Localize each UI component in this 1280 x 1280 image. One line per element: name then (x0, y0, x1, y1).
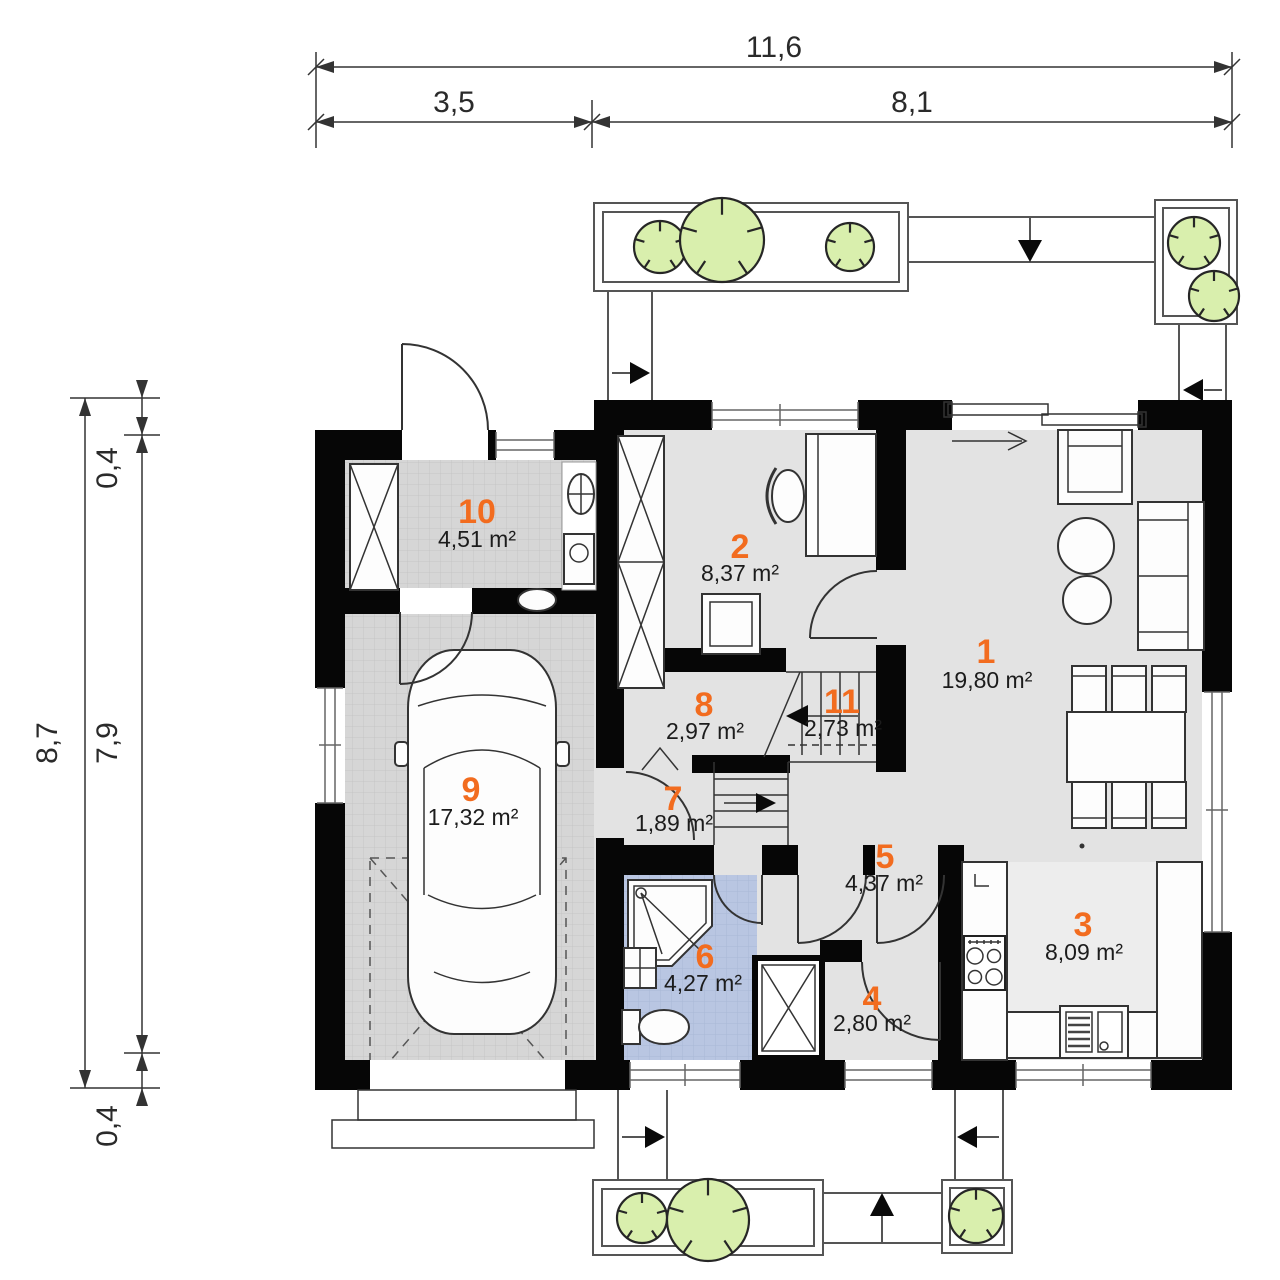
room-3-area: 8,09 m² (1045, 939, 1123, 965)
roof-slope-arrow-up (870, 1193, 894, 1216)
toilet (622, 1010, 689, 1044)
room-9-area: 17,32 m² (428, 804, 519, 830)
dim-house-width: 8,1 (891, 86, 933, 119)
utility-niche (562, 462, 596, 590)
closet-shaft (755, 958, 822, 1058)
dining-set (1067, 666, 1186, 828)
room-11-area: 2,73 m² (804, 715, 882, 741)
planter-top-left (594, 198, 908, 291)
floor-plan-page: 11,6 3,5 8,1 8,7 0,4 7,9 0,4 1 19,80 m² (0, 0, 1280, 1280)
bush (1168, 217, 1220, 269)
washbasin-bath (624, 948, 656, 988)
dim-wall-bottom: 0,4 (91, 1105, 124, 1147)
wardrobe-room2 (618, 436, 664, 688)
car-mirror-left (395, 742, 408, 766)
garage-sink (518, 589, 556, 611)
sofa (1138, 502, 1204, 650)
chair-room2 (702, 594, 760, 654)
room-1-number: 1 (977, 633, 996, 671)
coffee-table-small (1063, 576, 1111, 624)
driveway-apron (332, 1090, 594, 1148)
planter-top-right (1155, 200, 1239, 324)
window-garage (315, 688, 345, 803)
boiler (564, 534, 594, 584)
window-storage (845, 1060, 932, 1090)
kitchen-sink (1060, 1006, 1128, 1058)
floor-plan-drawing: 11,6 3,5 8,1 8,7 0,4 7,9 0,4 1 19,80 m² (0, 0, 1280, 1280)
office-chair (767, 468, 804, 524)
armchair (1058, 430, 1132, 504)
window-bathroom (630, 1060, 740, 1090)
dim-garage-width: 3,5 (433, 86, 475, 119)
bush (949, 1189, 1003, 1243)
window-kitchen (1016, 1060, 1151, 1090)
entry-door-opening (402, 430, 488, 460)
room-1-area: 19,80 m² (942, 667, 1033, 693)
planter-bottom-right (942, 1180, 1012, 1253)
hall-garage-door-opening (400, 588, 472, 614)
switch-dot (1080, 844, 1085, 849)
bush (826, 223, 874, 271)
bush (667, 1179, 749, 1261)
roof-slope-arrow-right-bottom (645, 1126, 665, 1148)
planter-bottom-left (593, 1179, 823, 1261)
room-4-area: 2,80 m² (833, 1010, 911, 1036)
dim-wall-top: 0,4 (91, 447, 124, 489)
roof-slope-arrow-left-bottom (957, 1126, 977, 1148)
stove (964, 936, 1005, 990)
room-7-area: 1,89 m² (635, 810, 713, 836)
window-dining (1202, 692, 1232, 932)
room-5-area: 4,37 m² (845, 870, 923, 896)
garage-door-opening (370, 1060, 565, 1090)
bush (1189, 271, 1239, 321)
room-10-area: 4,51 m² (438, 526, 516, 552)
bush (617, 1193, 667, 1243)
bush (634, 221, 686, 273)
window-room2 (712, 400, 858, 430)
bush (680, 198, 764, 282)
dim-inner-height: 7,9 (91, 722, 124, 764)
dining-table (1067, 712, 1185, 782)
room-2-area: 8,37 m² (701, 560, 779, 586)
entry-door (402, 344, 488, 430)
room-6-area: 4,27 m² (664, 970, 742, 996)
roof-slope-arrow-right-top (630, 362, 650, 384)
dim-total-width: 11,6 (746, 31, 802, 64)
desk (806, 434, 876, 556)
window-entry (496, 430, 554, 460)
car (395, 650, 569, 1034)
coffee-table-large (1058, 518, 1114, 574)
room-8-area: 2,97 m² (666, 718, 744, 744)
car-mirror-right (556, 742, 569, 766)
wardrobe-hall10 (350, 464, 398, 590)
roof-slope-arrow-down (1018, 240, 1042, 262)
dim-total-height: 8,7 (31, 722, 64, 764)
roof-slope-arrow-left-top (1183, 379, 1203, 401)
